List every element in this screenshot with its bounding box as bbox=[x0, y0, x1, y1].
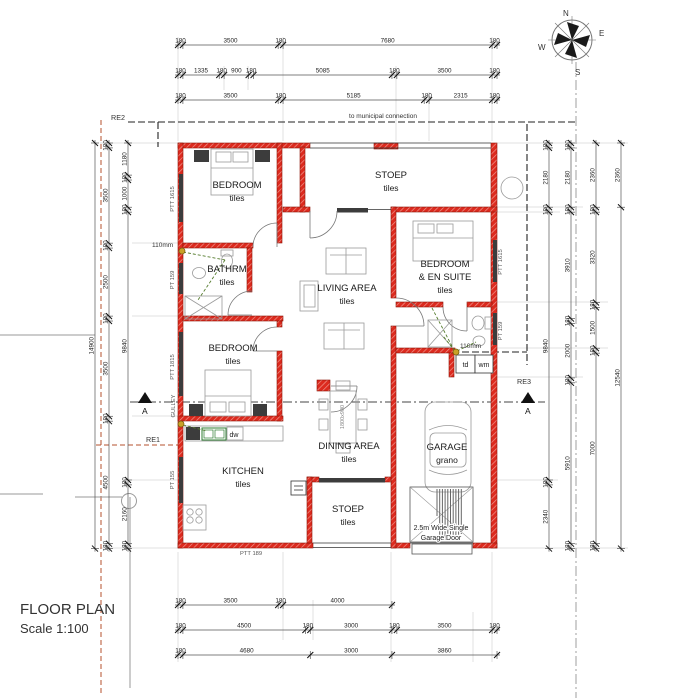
window-label: PTT 1615 bbox=[498, 249, 504, 274]
dimension-value: 2180 bbox=[543, 170, 550, 185]
section-marker-right bbox=[521, 392, 535, 403]
table-size-label: 1800x900 bbox=[340, 405, 346, 429]
toilet-ensuite bbox=[472, 316, 484, 330]
dimension-value: 4000 bbox=[331, 598, 346, 605]
window-label: PTT 1815 bbox=[170, 354, 176, 379]
geyser-box bbox=[291, 481, 306, 495]
garage-door-label-line1: 2.5m Wide Single bbox=[414, 525, 469, 532]
dimension-value: 1000 bbox=[122, 186, 129, 201]
svg-text:tiles: tiles bbox=[219, 277, 234, 287]
dimension-value: 3860 bbox=[437, 648, 452, 655]
dimension-row: 18035001804000 bbox=[175, 598, 395, 610]
water-meter-symbol bbox=[122, 494, 137, 509]
bed-bedroom2 bbox=[205, 370, 251, 416]
dimension-value: 4680 bbox=[240, 648, 255, 655]
basin-bathroom bbox=[193, 268, 206, 279]
window-bedroom2-left bbox=[179, 332, 183, 396]
dimension-value: 9840 bbox=[543, 339, 550, 354]
dimension-value: 3000 bbox=[344, 623, 359, 630]
dimension-value: 7000 bbox=[590, 441, 597, 456]
dimension-value: 2360 bbox=[615, 168, 622, 183]
dimension-value: 3500 bbox=[103, 361, 110, 376]
dimension-value: 9840 bbox=[122, 339, 129, 354]
section-label-left: A bbox=[142, 406, 148, 416]
window-bedroom1-left bbox=[179, 174, 183, 222]
svg-text:tiles: tiles bbox=[225, 356, 240, 366]
vent-pipe-symbol bbox=[453, 349, 459, 355]
room-label-dining: DINING AREA bbox=[318, 441, 380, 452]
dimension-value: 1180 bbox=[122, 152, 129, 166]
pipe-size-bath: 110mm bbox=[152, 242, 173, 249]
garage-door: 2.5m Wide Single Garage Door bbox=[410, 487, 473, 554]
dimension-value: 3500 bbox=[437, 68, 452, 75]
window-bathroom-left bbox=[179, 263, 183, 294]
bedside-table bbox=[189, 404, 203, 416]
svg-text:grano: grano bbox=[436, 455, 458, 465]
room-label-stoep-bottom: STOEP bbox=[332, 504, 364, 515]
compass-rose: N E S W bbox=[538, 9, 604, 77]
room-label-bedroom1: BEDROOM bbox=[212, 180, 261, 191]
dimension-value: 2360 bbox=[590, 168, 597, 183]
re3-label: RE3 bbox=[517, 377, 531, 386]
sliding-door-dining-south bbox=[319, 478, 385, 483]
compass-north: N bbox=[563, 9, 569, 18]
section-label-right: A bbox=[525, 406, 531, 416]
dimension-row: 180133518090018050851803500180 bbox=[175, 68, 500, 80]
dining-chair bbox=[336, 381, 350, 390]
dimension-row: 236012540 bbox=[615, 140, 626, 552]
window-ensuite-bath-right bbox=[493, 313, 497, 345]
drawing-scale: Scale 1:100 bbox=[20, 621, 89, 636]
re2-label: RE2 bbox=[111, 113, 125, 122]
bedside-table bbox=[194, 150, 209, 162]
municipal-note: to municipal connection bbox=[349, 113, 417, 120]
dining-chair bbox=[319, 419, 328, 430]
dimension-value: 2180 bbox=[565, 170, 572, 185]
compass-east: E bbox=[599, 29, 604, 38]
room-label-bathroom: BATHRM bbox=[207, 264, 246, 275]
dimension-value: 3000 bbox=[344, 648, 359, 655]
svg-text:tiles: tiles bbox=[340, 517, 355, 527]
dimension-value: 3500 bbox=[437, 623, 452, 630]
room-label-bedroom2: BEDROOM bbox=[208, 343, 257, 354]
room-label-stoep-top: STOEP bbox=[375, 170, 407, 181]
dishwasher-label: dw bbox=[230, 432, 240, 439]
dimension-row: 180450018030001803500180 bbox=[175, 623, 500, 635]
dimension-row: 2360180332018015001807000180 bbox=[590, 140, 601, 552]
re1-label: RE1 bbox=[146, 435, 160, 444]
compass-south: S bbox=[575, 68, 580, 77]
window-label: PT 155 bbox=[170, 471, 176, 490]
dimension-value: 12540 bbox=[615, 369, 622, 387]
dimension-value: 7680 bbox=[381, 38, 396, 45]
dimension-row: 14900 bbox=[89, 140, 100, 552]
dimension-value: 3500 bbox=[224, 93, 239, 100]
dining-chair bbox=[319, 399, 328, 410]
gulley-symbol bbox=[179, 248, 185, 254]
dimension-value: 4500 bbox=[103, 475, 110, 490]
water-tank bbox=[501, 177, 523, 199]
drawing-title: FLOOR PLAN bbox=[20, 601, 115, 618]
floor-plan-sheet: A A bbox=[0, 0, 698, 700]
dimension-row: 180218018098401802340 bbox=[543, 140, 554, 552]
window-label: PTT 1615 bbox=[170, 186, 176, 211]
dimension-value: 14900 bbox=[89, 337, 96, 355]
bedside-table bbox=[255, 150, 270, 162]
dimension-row: 18035001807680180 bbox=[175, 38, 500, 50]
dimension-value: 2500 bbox=[103, 275, 110, 290]
dimension-value: 900 bbox=[231, 68, 242, 75]
bed-ensuite bbox=[413, 221, 473, 261]
dimension-value: 3500 bbox=[224, 598, 239, 605]
dining-chair bbox=[358, 399, 367, 410]
bedside-table bbox=[253, 404, 267, 416]
dimension-value: 3500 bbox=[103, 188, 110, 203]
dimension-value: 3500 bbox=[224, 38, 239, 45]
room-label-living: LIVING AREA bbox=[317, 283, 377, 294]
compass-west: W bbox=[538, 43, 546, 52]
dimension-value: 3910 bbox=[565, 258, 572, 273]
window-kitchen-left bbox=[179, 457, 183, 503]
annotation-labels: PTT 1615 PT 159 PTT 1815 PT 155 PTT 1615… bbox=[111, 113, 531, 557]
dimension-value: 2340 bbox=[543, 509, 550, 524]
washing-machine-label: wm bbox=[478, 362, 490, 369]
dimension-value: 1335 bbox=[194, 68, 209, 75]
dimension-value: 3320 bbox=[590, 250, 597, 265]
stove bbox=[183, 505, 206, 530]
svg-text:tiles: tiles bbox=[235, 479, 250, 489]
tumble-dryer-label: td bbox=[463, 362, 469, 369]
gulley-label: GULLEY bbox=[171, 394, 177, 417]
floor-plan-svg: A A bbox=[0, 0, 698, 700]
svg-text:tiles: tiles bbox=[383, 183, 398, 193]
dimension-row: 180350018051851802315180 bbox=[175, 93, 500, 105]
room-label-bedroom-ensuite: BEDROOM bbox=[420, 259, 469, 270]
room-label-garage: GARAGE bbox=[427, 442, 468, 453]
svg-text:tiles: tiles bbox=[229, 193, 244, 203]
svg-text:& EN SUITE: & EN SUITE bbox=[419, 272, 472, 283]
pipe-size-ensuite: 110mm bbox=[460, 343, 481, 350]
dimension-value: 2315 bbox=[454, 93, 469, 100]
dimension-row: 1803500180250018035001804500180 bbox=[103, 140, 114, 552]
dimension-value: 1500 bbox=[590, 320, 597, 335]
dimension-value: 4500 bbox=[237, 623, 252, 630]
dimension-value: 5910 bbox=[565, 456, 572, 471]
dimension-value: 2160 bbox=[122, 507, 129, 522]
window-label: PT 159 bbox=[170, 271, 176, 290]
gulley-symbol bbox=[178, 421, 184, 427]
section-marker-left bbox=[138, 392, 152, 403]
dimension-row: 1802180180391018020001805910180 bbox=[565, 140, 576, 552]
dimension-value: 2000 bbox=[565, 343, 572, 358]
room-label-kitchen: KITCHEN bbox=[222, 466, 264, 477]
dimension-value: 5085 bbox=[316, 68, 331, 75]
dining-chair bbox=[358, 419, 367, 430]
dimension-value: 5185 bbox=[347, 93, 362, 100]
svg-text:tiles: tiles bbox=[339, 296, 354, 306]
window-ensuite-bedroom-right bbox=[493, 240, 497, 282]
window-living-north bbox=[337, 208, 368, 213]
dimension-row: 180468030003860 bbox=[175, 648, 500, 660]
window-label: PT 159 bbox=[498, 322, 504, 341]
dimension-row: 1180180100018098401802160180 bbox=[122, 140, 133, 552]
svg-text:tiles: tiles bbox=[437, 285, 452, 295]
wall-label: PTT 189 bbox=[240, 551, 262, 557]
garage-door-label-line2: Garage Door bbox=[421, 535, 462, 542]
svg-text:tiles: tiles bbox=[341, 454, 356, 464]
